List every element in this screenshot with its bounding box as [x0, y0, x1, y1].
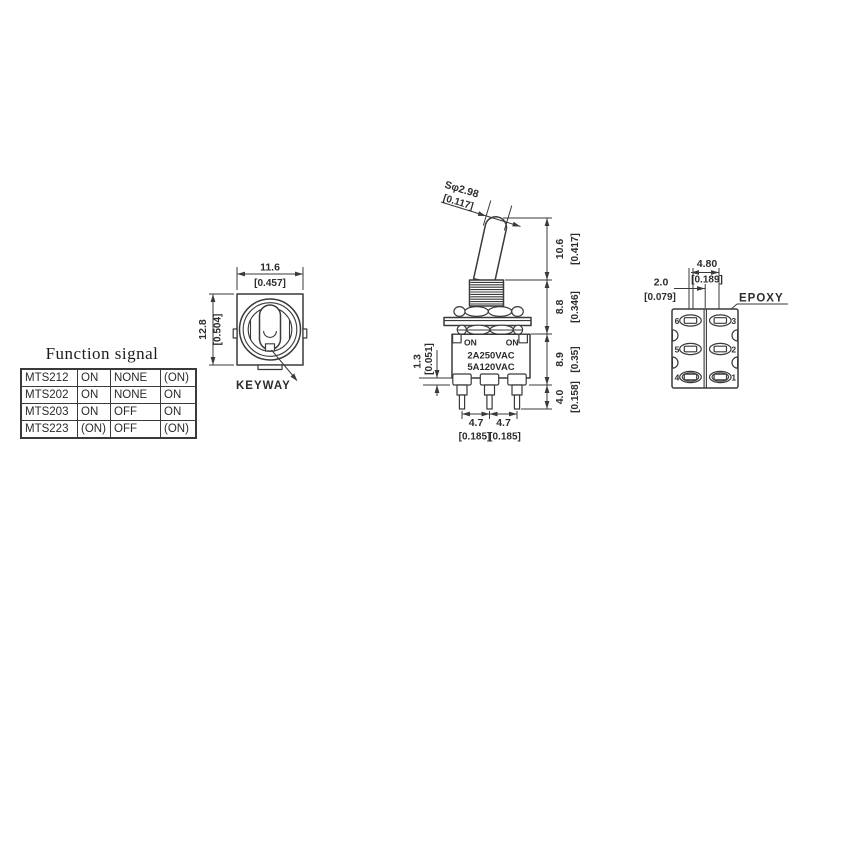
standoff-mm: 1.3 — [412, 354, 424, 369]
pitch-left-mm: 4.7 — [469, 417, 484, 429]
toggle-lever-front — [260, 305, 281, 350]
front-height-in: [0.504] — [213, 314, 224, 346]
pin-number-2: 2 — [731, 344, 736, 354]
spacing-mm: 4.80 — [697, 258, 718, 270]
terminal-4 — [680, 371, 702, 382]
front-bottom-tab — [258, 365, 282, 370]
actuator-len-in: [0.417] — [570, 233, 581, 265]
arrowhead — [295, 272, 303, 277]
offset-in: [0.079] — [644, 292, 676, 303]
technical-drawing: 11.6 [0.457] 12.8 [0.504] — [0, 0, 846, 846]
front-view: 11.6 [0.457] 12.8 [0.504] — [197, 262, 307, 393]
arrowhead — [509, 412, 517, 417]
pin-number-6: 6 — [675, 316, 680, 326]
terminal-len-in: [0.158] — [570, 381, 581, 413]
keyway-notch — [266, 344, 275, 351]
arrowhead — [545, 401, 550, 409]
arrowhead — [211, 357, 216, 365]
bottom-view: 4.80 [0.189] 2.0 [0.079] EPOXY — [644, 258, 788, 388]
body-top-right-tab — [519, 334, 528, 343]
epoxy-label: EPOXY — [739, 293, 784, 305]
keyway-label: KEYWAY — [236, 380, 291, 392]
edge-notch — [672, 357, 678, 368]
arrowhead — [512, 222, 520, 227]
marking-on-right: ON — [506, 338, 519, 348]
pin-number-1: 1 — [731, 372, 736, 382]
arrowhead — [435, 385, 440, 393]
side-view: Sφ2.98 [0.117] — [412, 179, 582, 443]
arrowhead — [545, 334, 550, 342]
terminal-6 — [680, 315, 702, 326]
terminal-1 — [710, 371, 732, 382]
terminal-5 — [680, 343, 702, 354]
pitch-right-in: [0.185] — [489, 432, 521, 443]
pitch-right-mm: 4.7 — [496, 417, 511, 429]
arrowhead — [545, 377, 550, 385]
body-len-in: [0.35] — [570, 346, 581, 372]
standoff-foot — [508, 374, 526, 385]
rating-line2: 5A120VAC — [467, 362, 514, 373]
arrowhead — [697, 286, 705, 291]
arrowhead — [478, 211, 486, 216]
toggle-lever-side — [474, 217, 507, 284]
arrowhead — [545, 272, 550, 280]
spacing-in: [0.189] — [691, 275, 723, 286]
body-len-mm: 8.9 — [554, 352, 566, 367]
hex-nut — [454, 307, 523, 317]
terminal-3 — [710, 315, 732, 326]
bushing-len-in: [0.346] — [570, 291, 581, 323]
edge-notch — [732, 330, 738, 341]
arrowhead — [462, 412, 470, 417]
rating-line1: 2A250VAC — [467, 351, 514, 362]
datasheet-drawing-page: Function signal MTS212 ON NONE (ON) MTS2… — [0, 0, 846, 846]
edge-notch — [672, 330, 678, 341]
marking-on-left: ON — [464, 338, 477, 348]
arrowhead — [545, 218, 550, 226]
pitch-left-in: [0.185] — [459, 432, 491, 443]
standoff-foot — [480, 374, 498, 385]
front-right-notch — [303, 329, 307, 338]
arrowhead — [482, 412, 490, 417]
arrowhead — [545, 280, 550, 288]
actuator-len-mm: 10.6 — [554, 239, 566, 260]
pin-number-3: 3 — [731, 316, 736, 326]
terminal-2 — [710, 343, 732, 354]
edge-notch — [732, 357, 738, 368]
arrowhead — [545, 385, 550, 393]
terminal-len-mm: 4.0 — [554, 390, 566, 405]
arrowhead — [490, 412, 498, 417]
front-width-mm: 11.6 — [260, 262, 280, 274]
standoff-in: [0.051] — [424, 343, 435, 375]
pin-number-5: 5 — [675, 344, 680, 354]
front-height-mm: 12.8 — [197, 319, 209, 340]
arrowhead — [435, 370, 440, 378]
front-left-notch — [233, 329, 237, 338]
arrowhead — [211, 294, 216, 302]
front-width-in: [0.457] — [254, 278, 286, 289]
solder-terminals — [457, 385, 522, 409]
arrowhead — [237, 272, 245, 277]
pin-number-4: 4 — [675, 372, 680, 382]
bushing-len-mm: 8.8 — [554, 300, 566, 315]
mounting-plate — [444, 318, 531, 326]
offset-mm: 2.0 — [654, 277, 669, 289]
lock-washer — [457, 325, 523, 334]
arrowhead — [545, 326, 550, 334]
body-top-left-tab — [453, 334, 462, 343]
standoff-foot — [453, 374, 471, 385]
